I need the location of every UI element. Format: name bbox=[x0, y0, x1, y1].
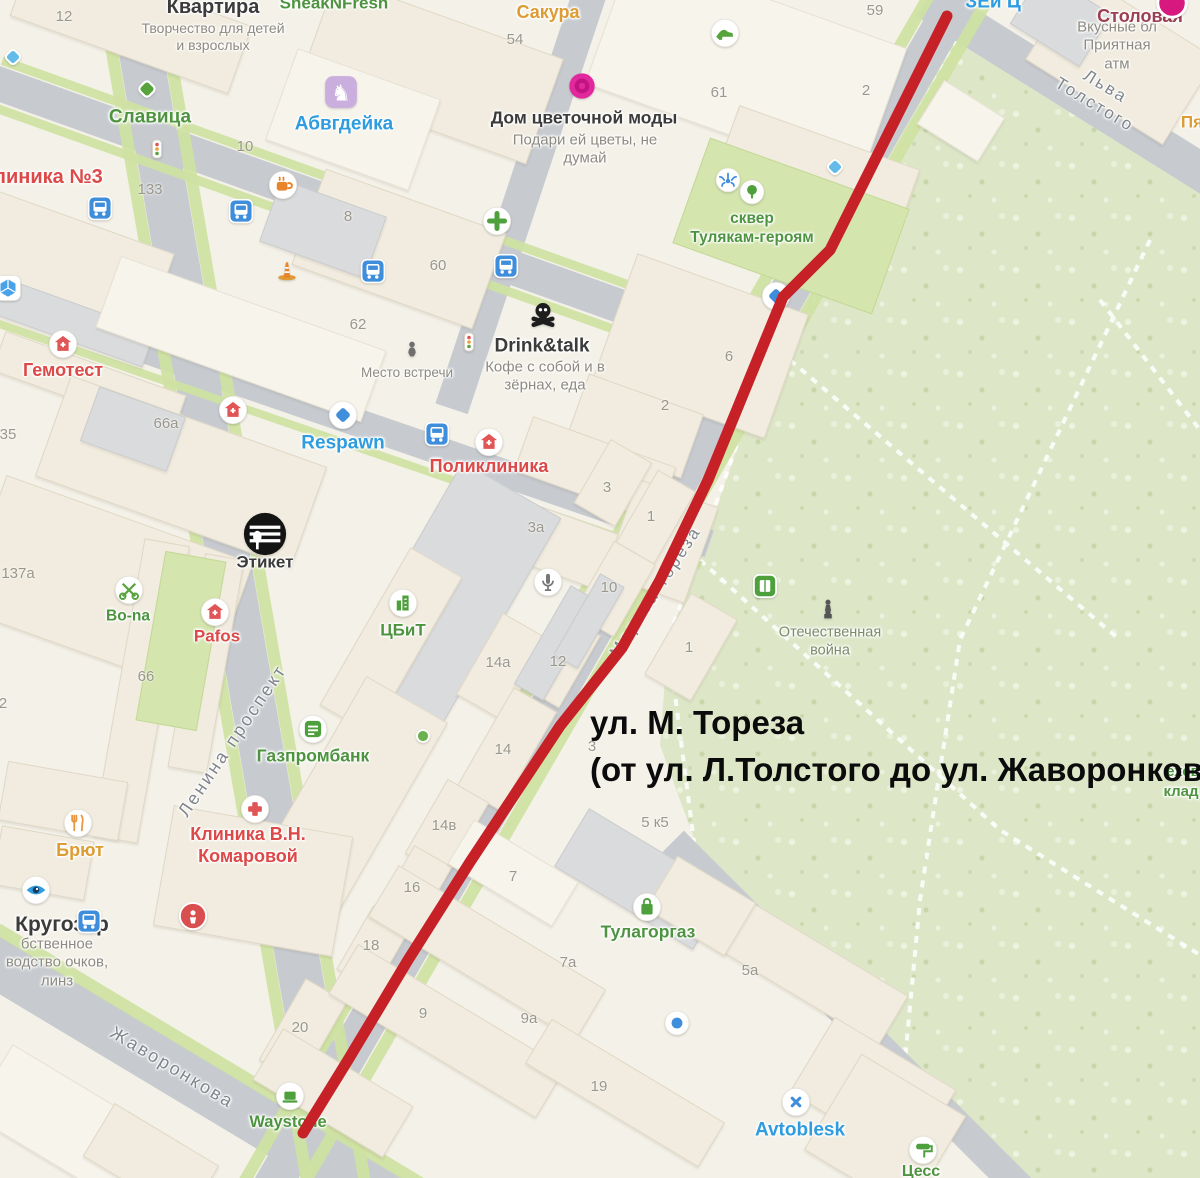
green-dot-icon[interactable] bbox=[414, 727, 432, 745]
house-icon[interactable] bbox=[474, 427, 504, 457]
bus-stop-icon[interactable] bbox=[424, 421, 450, 447]
bus-stop-icon[interactable] bbox=[87, 195, 113, 221]
building bbox=[525, 1019, 725, 1168]
house-number: 60 bbox=[430, 257, 447, 275]
house-number: 16 bbox=[404, 879, 421, 897]
utensils-icon[interactable] bbox=[63, 808, 93, 838]
poi-label[interactable]: Waystone bbox=[249, 1112, 326, 1132]
poi-label[interactable]: сквер Тулякам-героям bbox=[690, 210, 814, 248]
house-number: 10 bbox=[601, 579, 618, 597]
bus-stop-icon[interactable] bbox=[493, 253, 519, 279]
poi-label[interactable]: Брют bbox=[56, 840, 104, 862]
house-number: 1 bbox=[647, 508, 655, 526]
poi-label[interactable]: ЗЕи Ц bbox=[965, 0, 1020, 14]
traffic-light-icon[interactable] bbox=[145, 137, 169, 161]
horse-building-icon[interactable]: ♞ bbox=[322, 73, 360, 111]
poi-label[interactable]: Клиника В.Н. Комаровой bbox=[190, 824, 305, 868]
monument-icon[interactable] bbox=[813, 594, 843, 624]
bus-stop-icon[interactable] bbox=[228, 198, 254, 224]
bag-icon[interactable] bbox=[632, 892, 662, 922]
scissors-icon[interactable] bbox=[114, 575, 144, 605]
bus-stop-icon[interactable] bbox=[360, 258, 386, 284]
house-number: 2 bbox=[862, 82, 870, 100]
poi-label[interactable]: бственное водство очков, линз bbox=[6, 936, 108, 991]
house-number: 12 bbox=[550, 653, 567, 671]
blue-diamond-icon[interactable] bbox=[328, 400, 358, 430]
laptop-icon[interactable] bbox=[275, 1081, 305, 1111]
tools-icon[interactable] bbox=[781, 1087, 811, 1117]
svg-text:♞: ♞ bbox=[331, 81, 351, 107]
poi-label[interactable]: Место встречи bbox=[361, 365, 453, 381]
house-number: 19 bbox=[591, 1078, 608, 1096]
poi-label[interactable]: Отечественная война bbox=[779, 624, 881, 659]
poi-label[interactable]: линика №3 bbox=[0, 165, 103, 189]
house-number: 9 bbox=[419, 1005, 427, 1023]
bus-stop-icon[interactable] bbox=[76, 908, 102, 934]
cone-icon[interactable] bbox=[274, 257, 300, 283]
house-number: 14а bbox=[485, 654, 510, 672]
skull-icon[interactable] bbox=[525, 297, 561, 333]
fountain-icon[interactable] bbox=[715, 167, 741, 193]
poi-label[interactable]: Respawn bbox=[301, 431, 384, 454]
poi-label[interactable]: SneakNFresh bbox=[280, 0, 389, 14]
house-number: 14в bbox=[432, 817, 457, 835]
house-number: 10 bbox=[237, 138, 254, 156]
traffic-light-icon[interactable] bbox=[457, 330, 481, 354]
house-icon[interactable] bbox=[218, 395, 248, 425]
eye-icon[interactable] bbox=[21, 875, 51, 905]
poi-label[interactable]: Avtoblesk bbox=[755, 1118, 845, 1141]
route-title: ул. М. Тореза (от ул. Л.Толстого до ул. … bbox=[590, 700, 1200, 794]
poi-label[interactable]: Поликлиника bbox=[430, 456, 549, 478]
house-number: 59 bbox=[867, 2, 884, 20]
medcross-icon[interactable] bbox=[240, 794, 270, 824]
house-number: 5 к5 bbox=[641, 814, 668, 832]
house-number: 14 bbox=[495, 741, 512, 759]
house-number: 3 bbox=[603, 479, 611, 497]
house-number: 2 bbox=[0, 695, 7, 713]
poi-label[interactable]: Подари ей цветы, не думай bbox=[513, 132, 658, 169]
mic-icon[interactable] bbox=[533, 567, 563, 597]
roller-icon[interactable] bbox=[908, 1135, 938, 1165]
memorial-icon[interactable] bbox=[751, 572, 779, 600]
bank-icon[interactable] bbox=[298, 714, 328, 744]
house-number: 7а bbox=[560, 954, 577, 972]
poi-label[interactable]: ЦБиТ bbox=[380, 621, 425, 642]
house-icon[interactable] bbox=[48, 329, 78, 359]
poi-label[interactable]: Сакура bbox=[516, 2, 579, 24]
house-number: 61 bbox=[711, 84, 728, 102]
poi-label[interactable]: Bo-na bbox=[106, 608, 150, 627]
bluedot-icon[interactable] bbox=[664, 1010, 690, 1036]
magenta-icon[interactable] bbox=[1155, 0, 1189, 20]
person-icon[interactable] bbox=[401, 338, 423, 360]
house-number: 12 bbox=[56, 8, 73, 26]
pharmacy-plus-icon[interactable] bbox=[482, 206, 512, 236]
poi-label[interactable]: Тулагоргаз bbox=[601, 921, 696, 942]
house-number: 7 bbox=[509, 868, 517, 886]
route-title-line1: ул. М. Тореза bbox=[590, 700, 1200, 747]
blue-diamond-icon[interactable] bbox=[761, 281, 791, 311]
pond-icon[interactable] bbox=[1, 45, 25, 69]
poi-label[interactable]: Drink&talk bbox=[494, 334, 589, 357]
house-number: 5а bbox=[742, 962, 759, 980]
house-number: 8 bbox=[344, 208, 352, 226]
house-number: 18 bbox=[363, 937, 380, 955]
poi-label[interactable]: Славица bbox=[109, 105, 191, 128]
coffee-icon[interactable] bbox=[268, 170, 298, 200]
house-number: 35 bbox=[0, 426, 16, 444]
poi-label[interactable]: Пя bbox=[1181, 113, 1200, 134]
house-number: 1 bbox=[685, 639, 693, 657]
box3d-icon[interactable] bbox=[0, 273, 23, 303]
house-number: 2 bbox=[661, 397, 669, 415]
poi-label[interactable]: Дом цветочной моды bbox=[491, 107, 678, 128]
house-number: 54 bbox=[507, 31, 524, 49]
house-number: 66 bbox=[138, 668, 155, 686]
house-number: 137а bbox=[1, 565, 34, 583]
poi-label[interactable]: Газпромбанк bbox=[257, 745, 370, 766]
rose-icon[interactable] bbox=[566, 70, 598, 102]
house-number: 66а bbox=[153, 415, 178, 433]
house-icon[interactable] bbox=[200, 597, 230, 627]
poi-label[interactable]: Творчество для детей и взрослых bbox=[141, 20, 284, 54]
house-number: 20 bbox=[292, 1019, 309, 1037]
shoe-icon[interactable] bbox=[710, 18, 740, 48]
poi-label[interactable]: Кофе с собой и в зёрнах, еда bbox=[485, 359, 605, 396]
tree-icon[interactable] bbox=[739, 179, 765, 205]
house-number: 133 bbox=[137, 181, 162, 199]
house-number: 3а bbox=[528, 519, 545, 537]
pond-icon[interactable] bbox=[823, 155, 847, 179]
map-canvas[interactable]: КвартираДом цветочной модыDrink&talkКруг… bbox=[0, 0, 1200, 1178]
slavitsa-marker-icon[interactable] bbox=[134, 76, 160, 102]
etiket-logo-icon[interactable] bbox=[242, 511, 288, 557]
redcircle-icon[interactable] bbox=[178, 901, 208, 931]
poi-label[interactable]: Абвгдейка bbox=[295, 112, 393, 135]
poi-label[interactable]: Гемотест bbox=[23, 360, 103, 382]
poi-label[interactable]: Квартира bbox=[167, 0, 260, 19]
poi-label[interactable]: Pafos bbox=[194, 627, 240, 648]
house-number: 9а bbox=[521, 1010, 538, 1028]
house-number: 6 bbox=[725, 348, 733, 366]
route-title-line2: (от ул. Л.Толстого до ул. Жаворонкова) bbox=[590, 747, 1200, 794]
house-number: 62 bbox=[350, 316, 367, 334]
building-icon[interactable] bbox=[388, 588, 418, 618]
